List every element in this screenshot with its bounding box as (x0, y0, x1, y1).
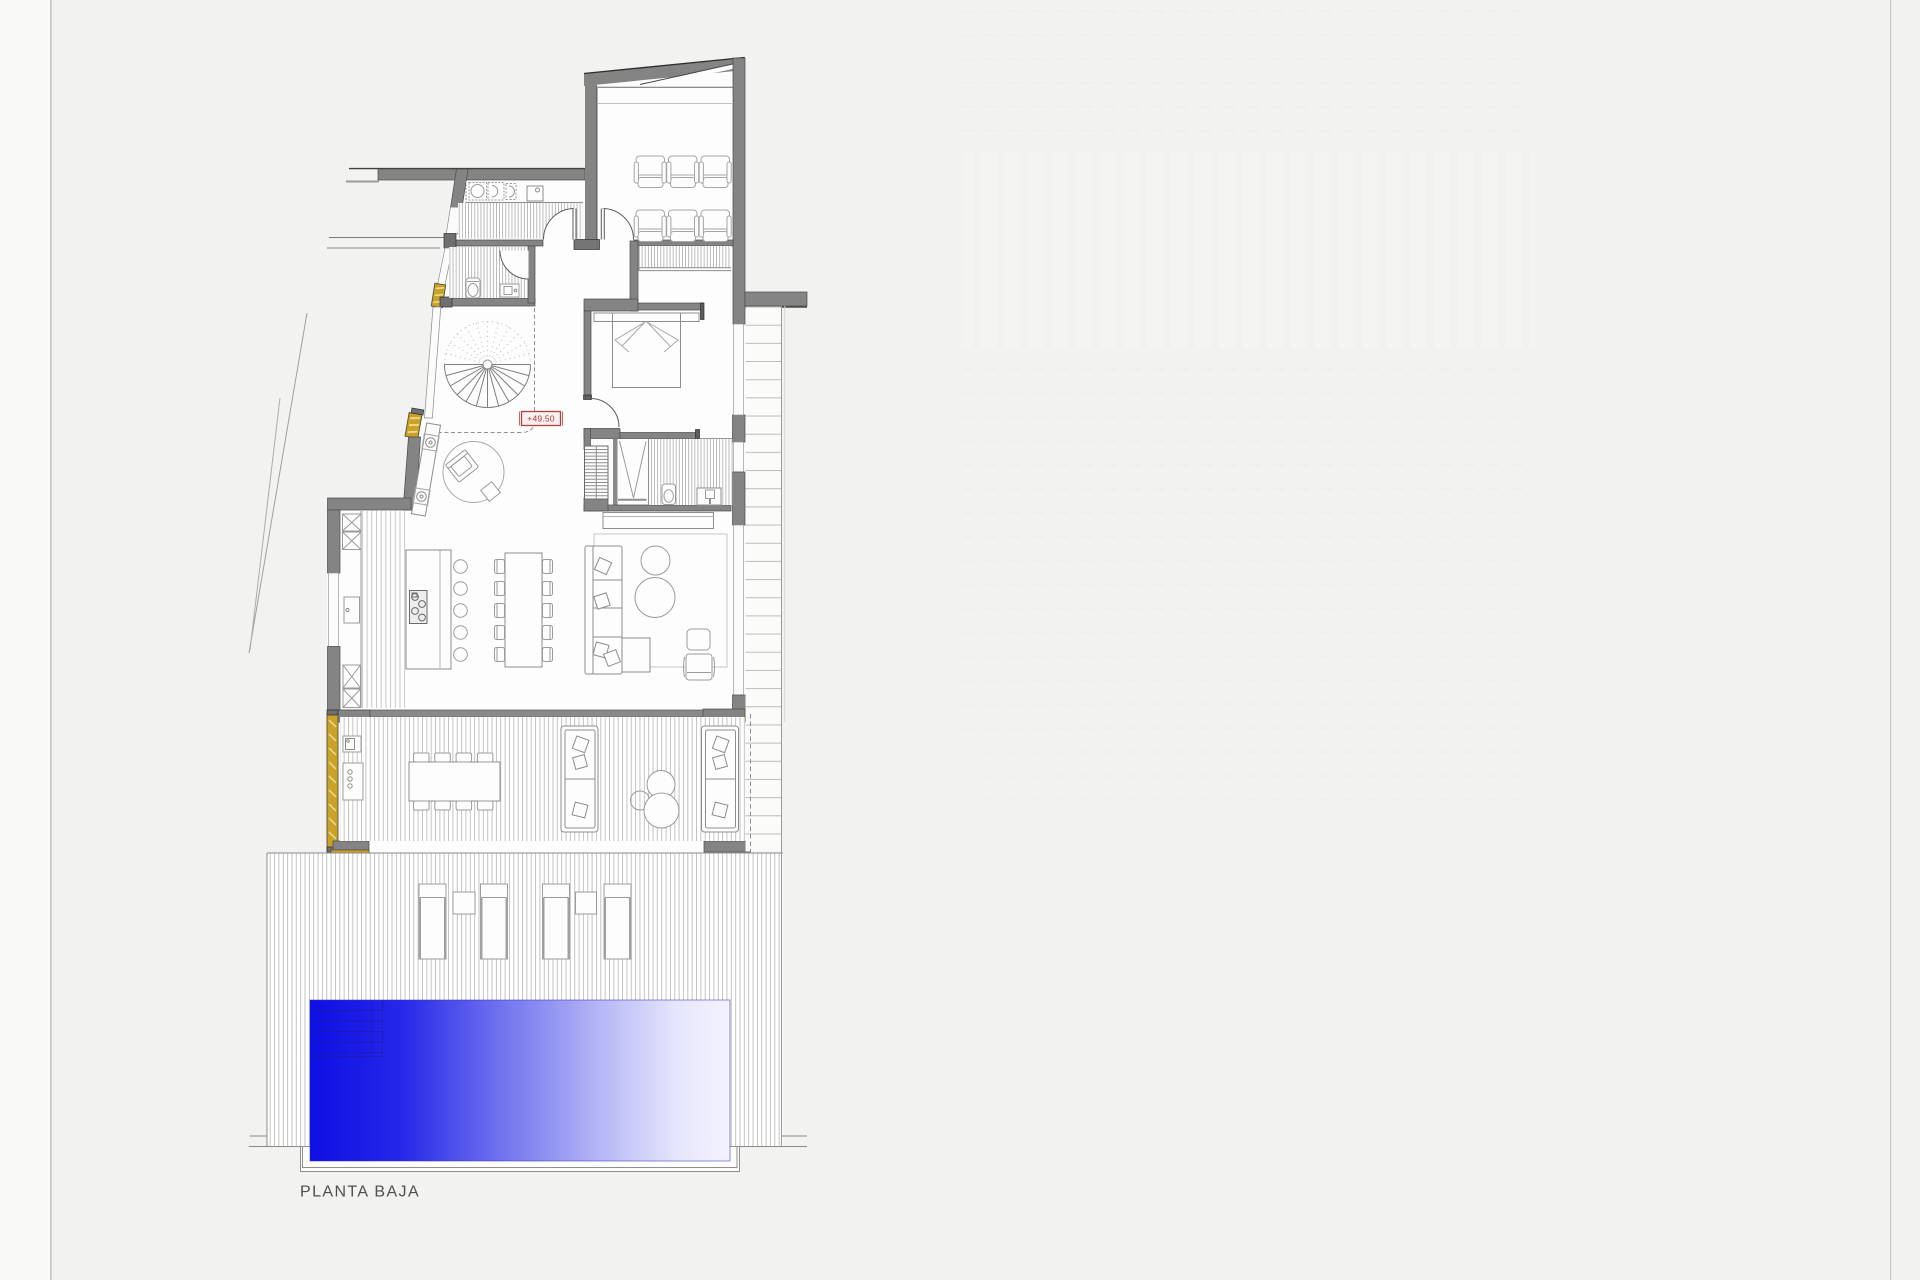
svg-text:PLANTA BAJA: PLANTA BAJA (300, 1184, 420, 1201)
svg-text:+49.50: +49.50 (527, 414, 555, 424)
